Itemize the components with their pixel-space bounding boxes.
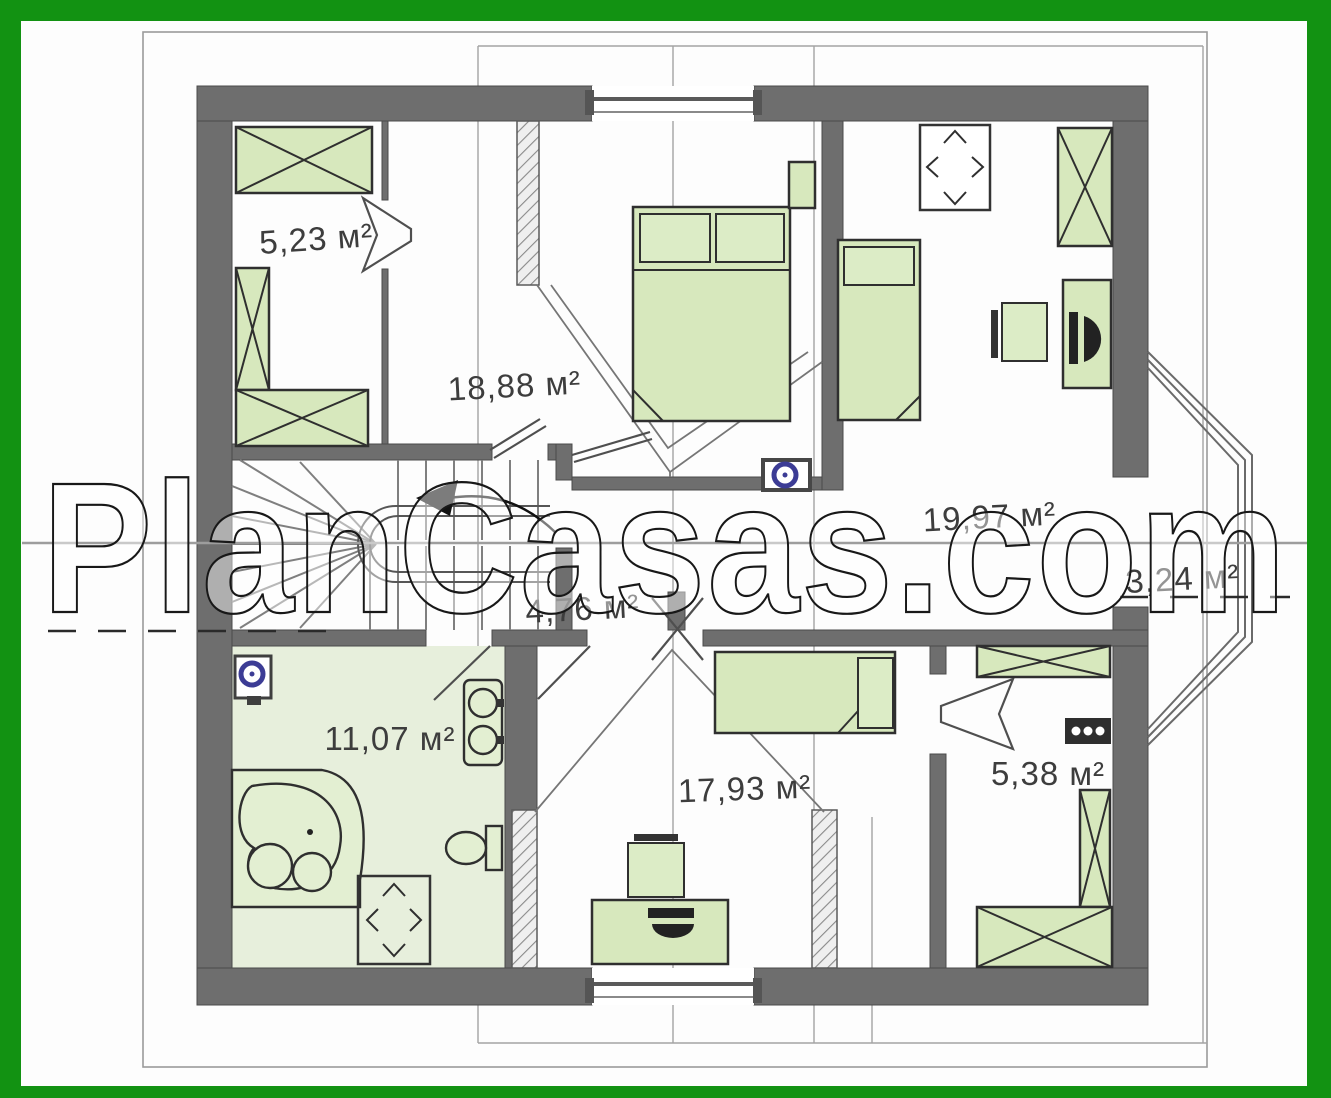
- nightstand: [789, 162, 815, 208]
- desk-right: [991, 280, 1111, 388]
- desk-lower: [592, 834, 728, 964]
- chair-back: [634, 834, 678, 841]
- computer-icon: [1069, 312, 1078, 364]
- chair-lower: [628, 843, 684, 897]
- room-label-bathroom: 11,07 м²: [325, 720, 456, 757]
- room-label-wardrobe-lower: 5,38 м²: [991, 755, 1105, 792]
- floor-plan-page: 5,23 м² 18,88 м² 19,97 м² 3,24 м² 4,76 м…: [0, 0, 1331, 1098]
- corner-bathtub: [232, 770, 364, 907]
- door-wardrobe-lower: [941, 679, 1013, 749]
- watermark-text: PlanCasas.com: [42, 445, 1288, 652]
- floor-plan-drawing: 5,23 м² 18,88 м² 19,97 м² 3,24 м² 4,76 м…: [0, 0, 1331, 1098]
- computer-icon: [648, 908, 694, 918]
- double-sink: [464, 680, 504, 765]
- wardrobe-right-room: [1058, 128, 1112, 246]
- room-label-bedroom-main: 18,88 м²: [447, 364, 582, 408]
- double-bed: [633, 207, 790, 421]
- chair-right: [1002, 303, 1047, 361]
- single-bed-lower: [715, 652, 895, 733]
- room-label-bedroom-lower: 17,93 м²: [677, 768, 812, 810]
- roof-window-icon: [920, 125, 990, 210]
- room-label-wardrobe-upper: 5,23 м²: [258, 216, 374, 261]
- window-bottom: [585, 968, 762, 1005]
- window-top: [585, 86, 762, 121]
- wardrobes-lower-room: [977, 646, 1112, 967]
- chair-back: [991, 310, 998, 358]
- vent-box-bathroom: [235, 656, 271, 705]
- single-bed-right: [838, 240, 920, 420]
- wardrobes-upper-room: [236, 127, 372, 446]
